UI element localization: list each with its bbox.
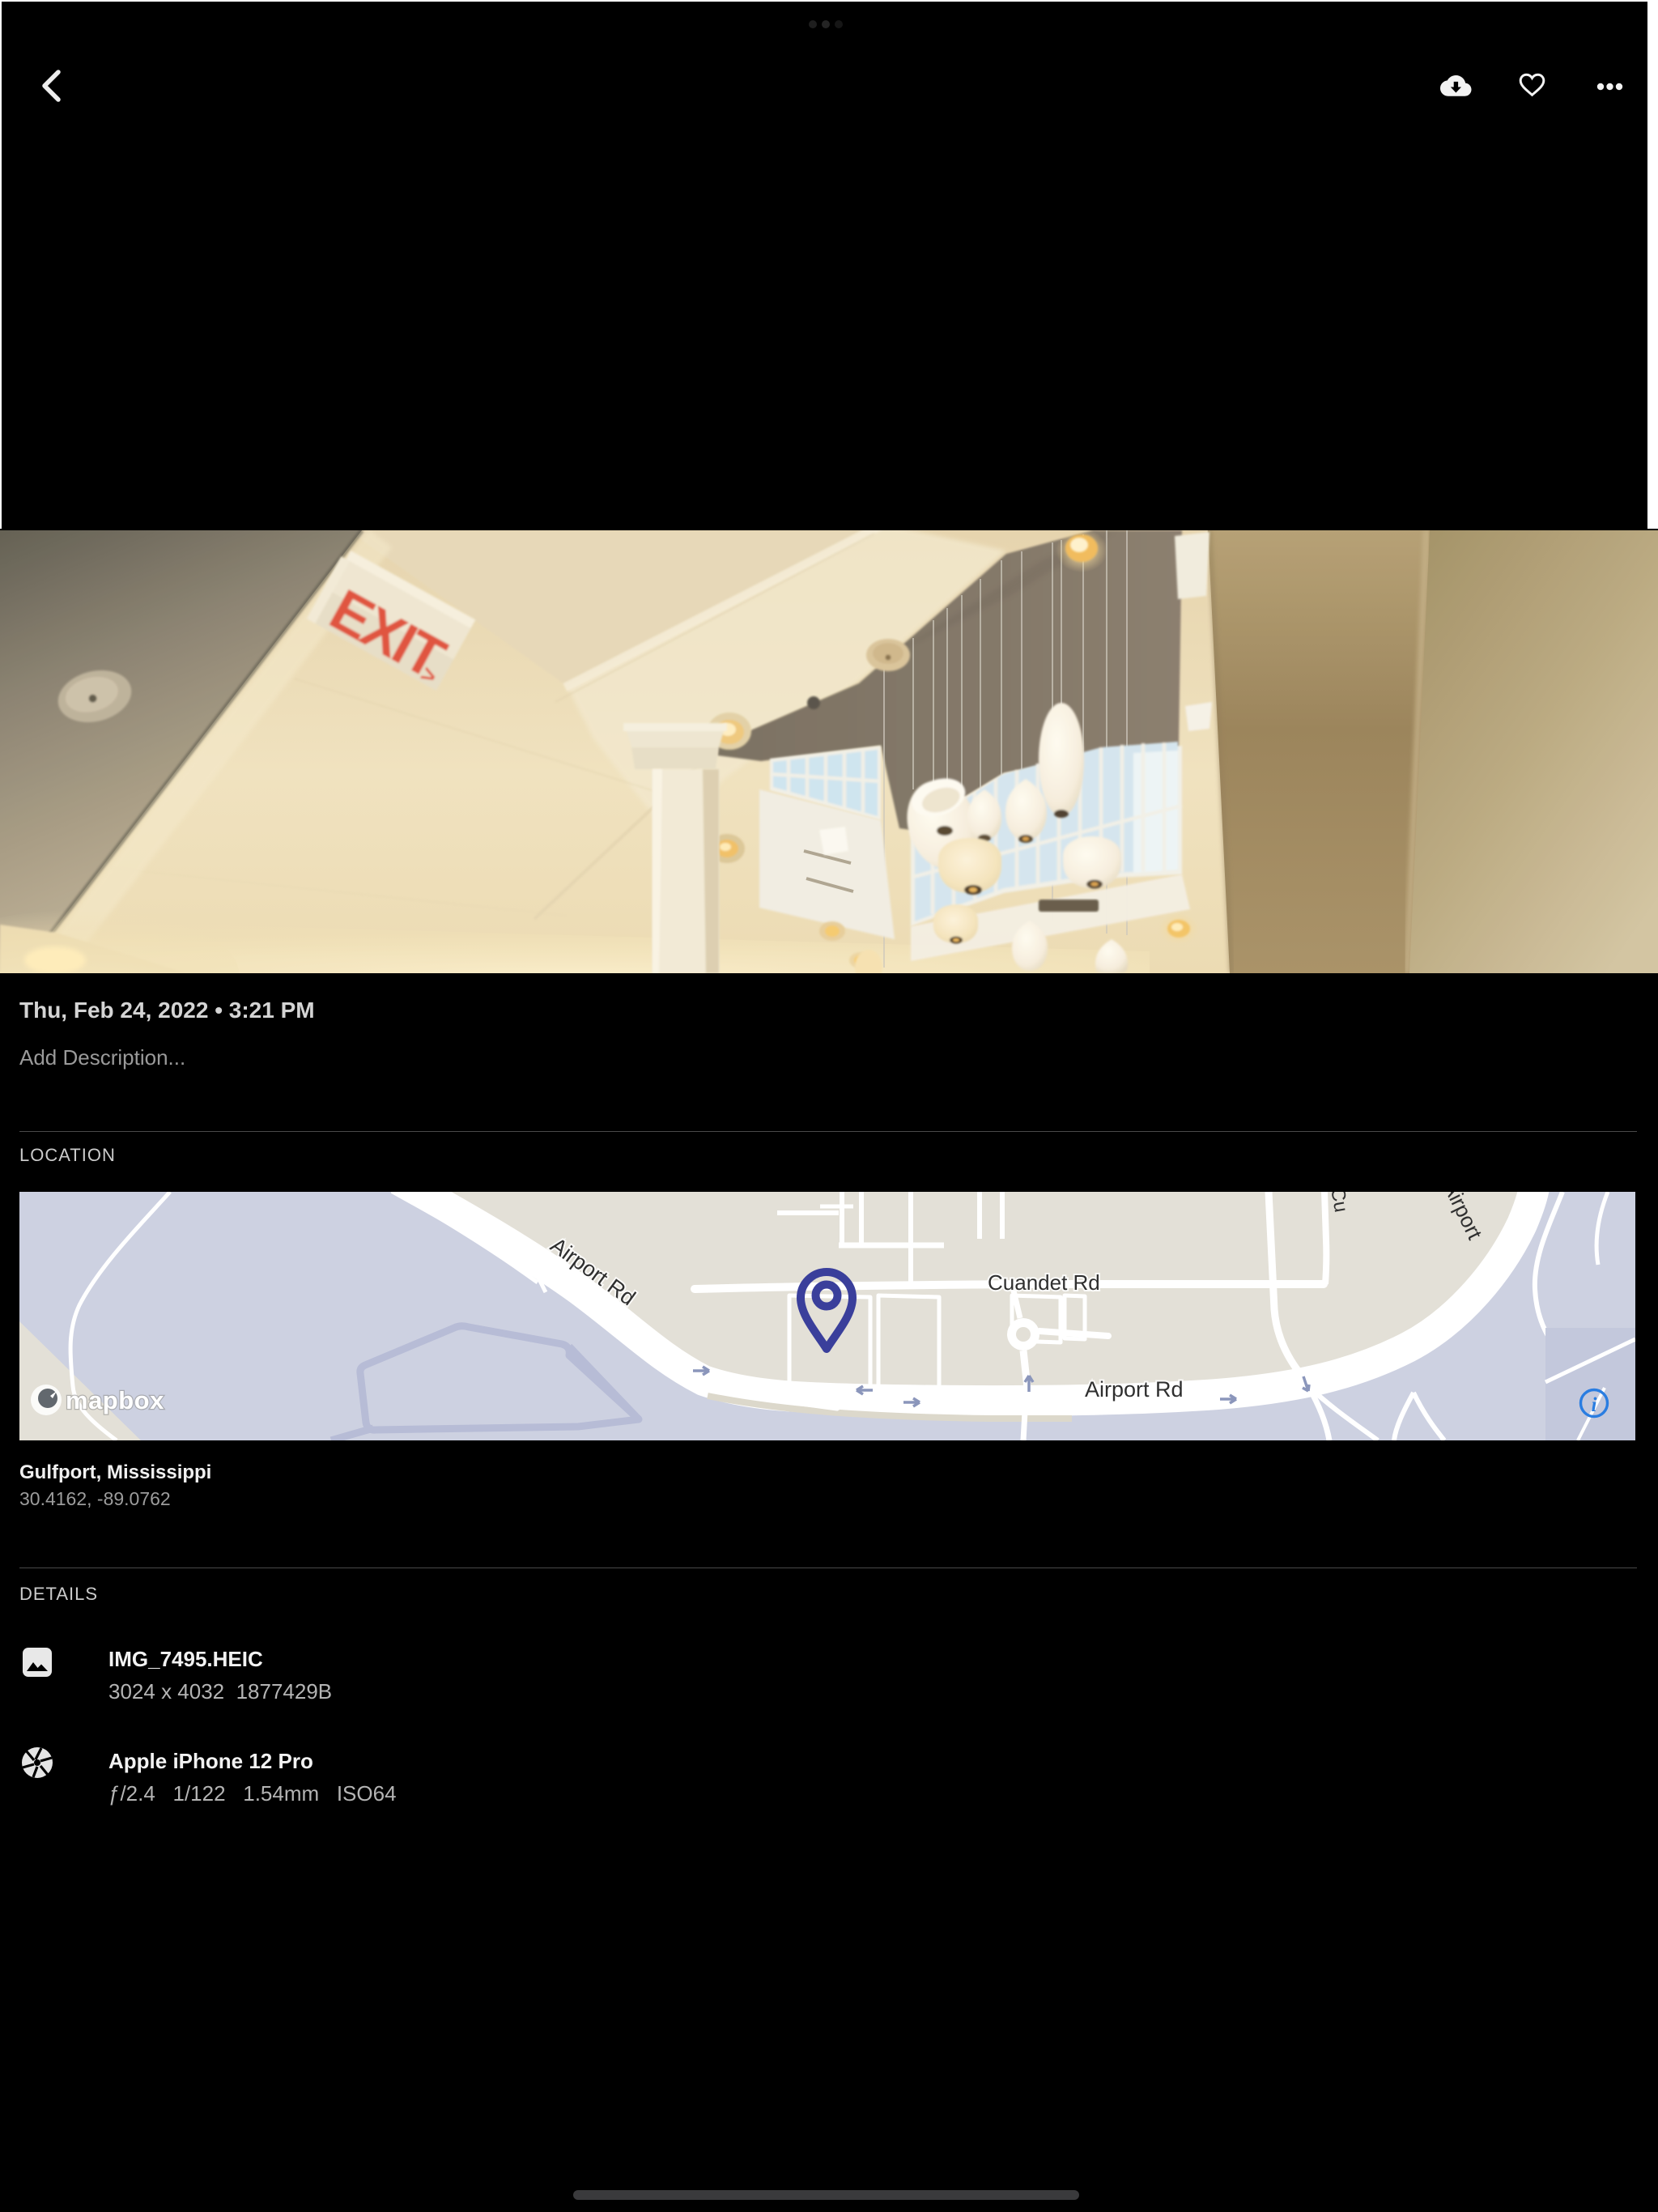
svg-text:Airport Rd: Airport Rd <box>1085 1377 1184 1402</box>
svg-text:Cu: Cu <box>1326 1192 1352 1214</box>
svg-text:i: i <box>1592 1394 1597 1416</box>
svg-text:mapbox: mapbox <box>66 1386 164 1414</box>
svg-text:Airport: Airport <box>1439 1192 1488 1244</box>
svg-text:Cuandet Rd: Cuandet Rd <box>988 1270 1100 1295</box>
